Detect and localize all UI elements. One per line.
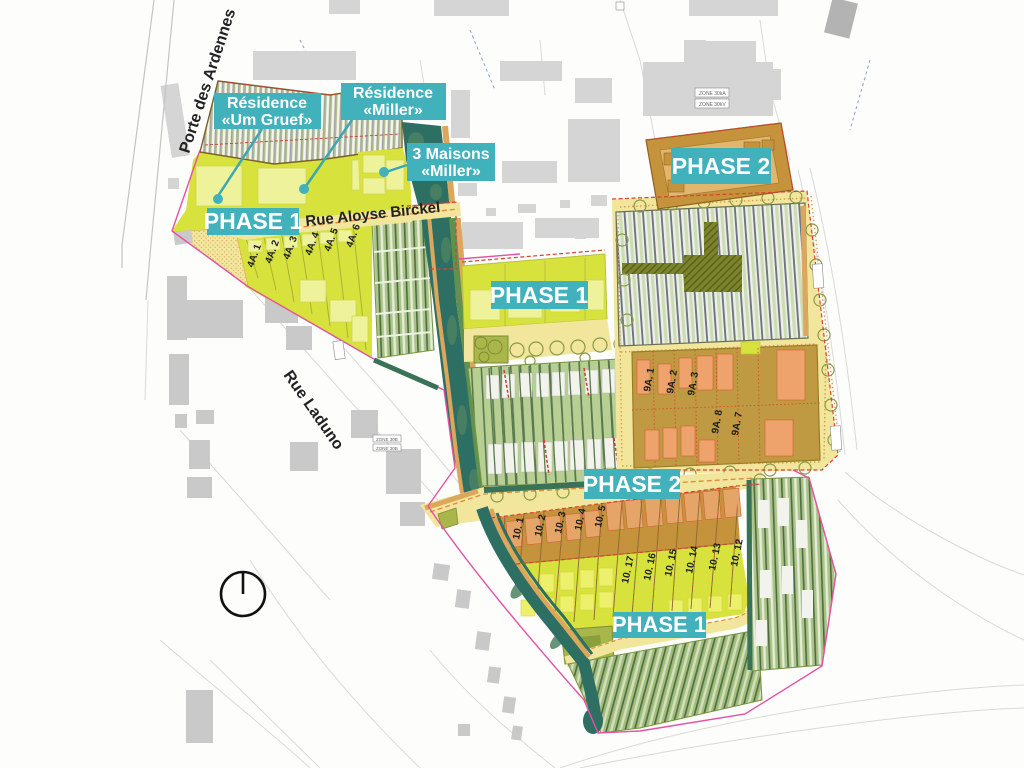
svg-text:Résidence: Résidence (227, 95, 307, 112)
svg-text:PHASE 1: PHASE 1 (612, 612, 706, 637)
svg-text:ZONE 30B: ZONE 30B (376, 446, 398, 451)
svg-text:ZONE 30kA: ZONE 30kA (699, 91, 726, 97)
svg-text:«Miller»: «Miller» (363, 102, 423, 119)
svg-text:Résidence: Résidence (353, 85, 433, 102)
svg-text:PHASE 2: PHASE 2 (583, 471, 681, 497)
svg-text:ZONE 30kV: ZONE 30kV (699, 102, 726, 108)
svg-text:«Miller»: «Miller» (421, 163, 481, 180)
svg-text:PHASE 2: PHASE 2 (672, 153, 770, 179)
svg-text:3 Maisons: 3 Maisons (412, 146, 489, 163)
svg-text:«Um Gruef»: «Um Gruef» (222, 112, 313, 129)
svg-text:PHASE 1: PHASE 1 (490, 282, 589, 308)
svg-text:ZONE 30B: ZONE 30B (376, 437, 398, 442)
svg-text:PHASE 1: PHASE 1 (204, 208, 303, 234)
